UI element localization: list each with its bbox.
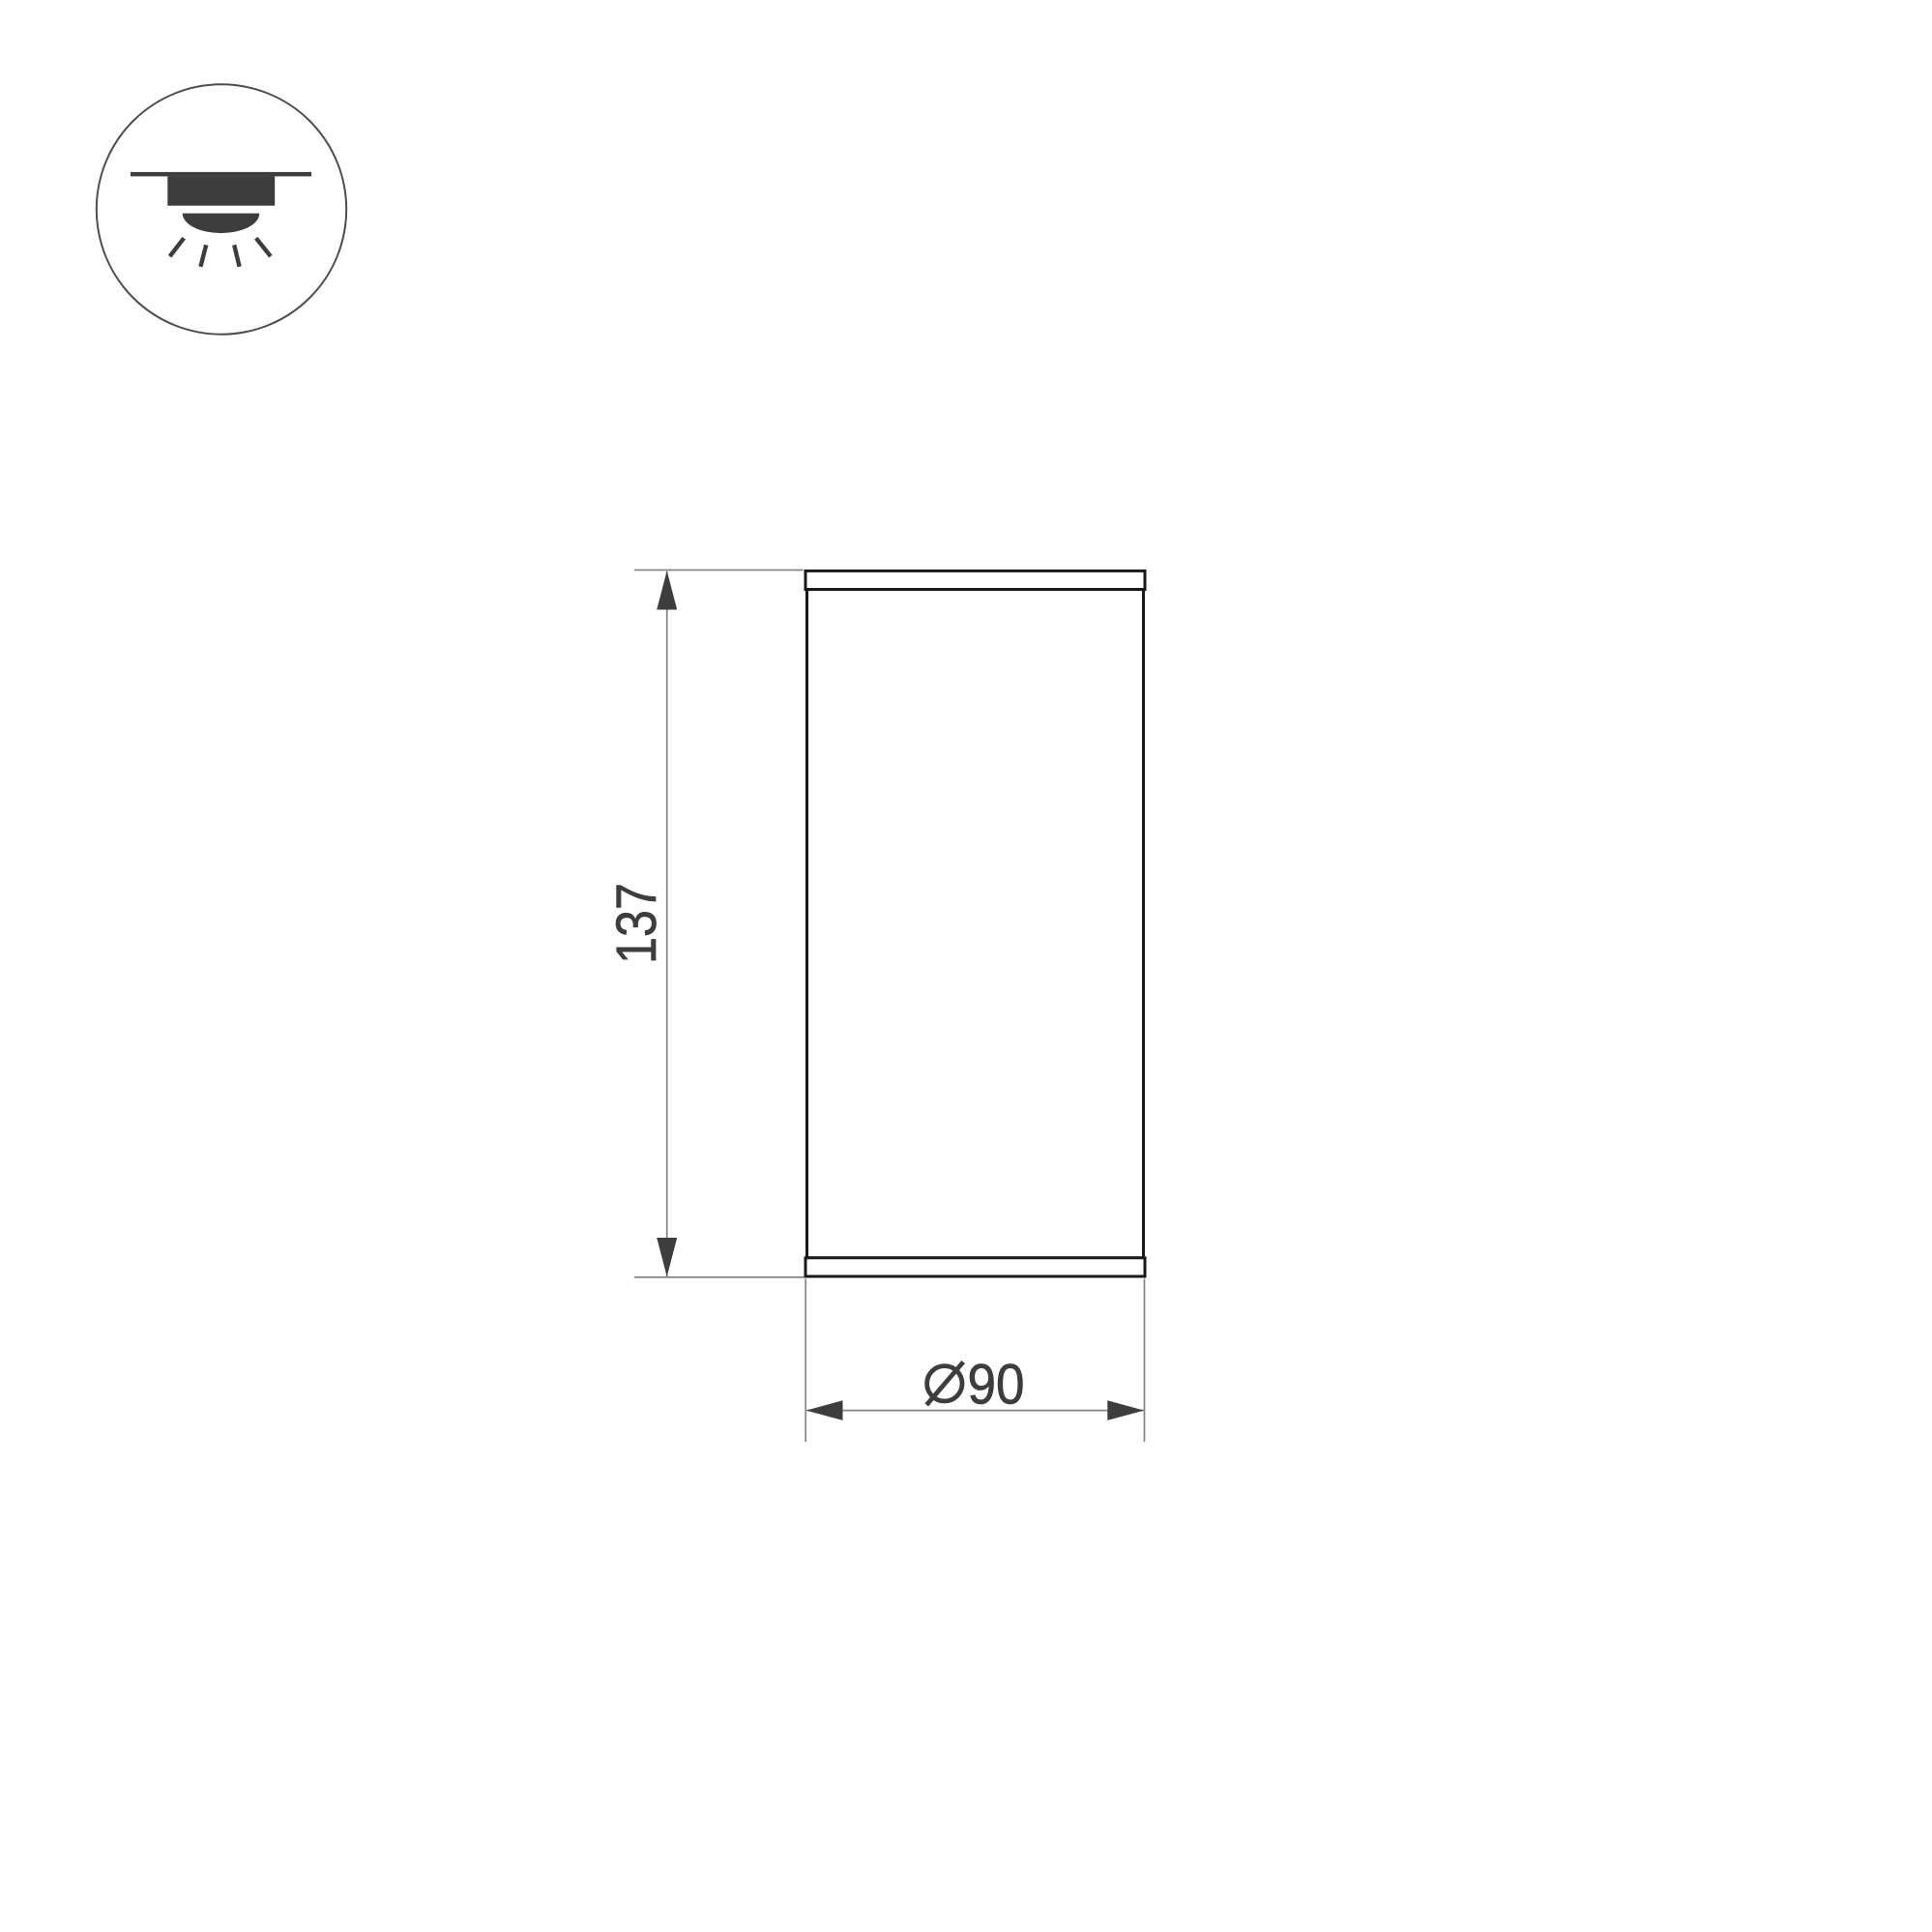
svg-text:90: 90 (968, 1354, 1025, 1417)
svg-text:137: 137 (605, 883, 668, 964)
